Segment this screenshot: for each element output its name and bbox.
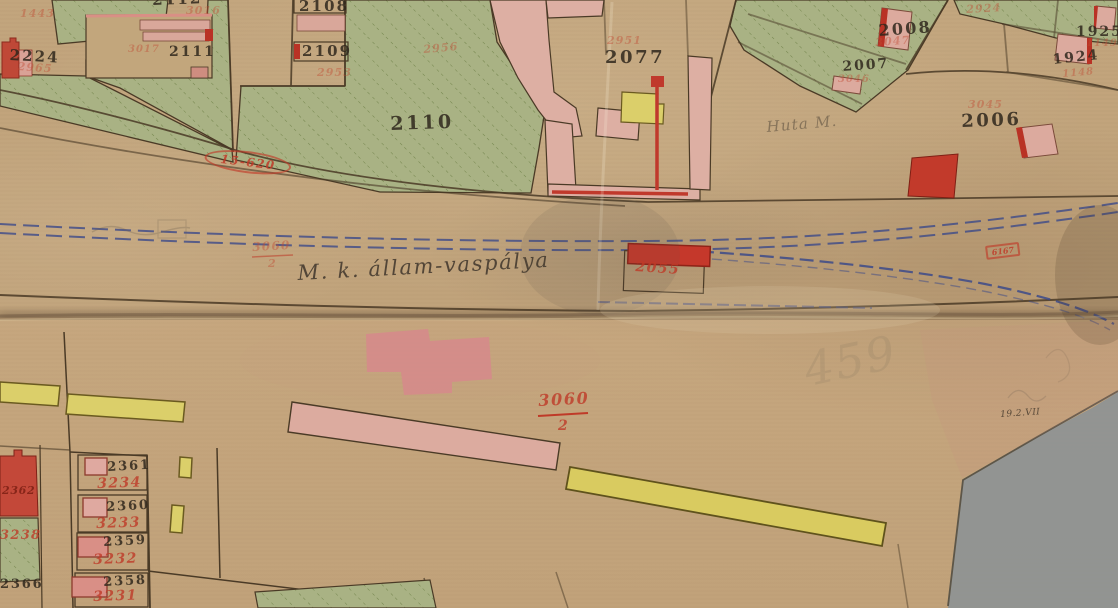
map-label-2366: 2366: [0, 578, 43, 591]
map-label-2362: 2362: [2, 485, 35, 496]
map-label-3231: 3231: [93, 588, 138, 604]
map-label-2109: 2109: [302, 44, 352, 59]
map-label-2111: 2111: [169, 45, 216, 59]
map-label-1924: 1924: [1052, 48, 1100, 67]
map-label-2953: 2953: [317, 67, 352, 78]
map-label-3047: 3047: [875, 35, 911, 48]
map-label-2007: 2007: [842, 57, 890, 74]
map-label-3045: 3045: [968, 99, 1003, 110]
map-label-3233: 3233: [96, 515, 141, 531]
map-label-19-2-vii: 19.2.VII: [1000, 408, 1041, 420]
map-label-2108: 2108: [299, 0, 349, 14]
map-label-2: 2: [558, 419, 569, 433]
map-label-2956: 2956: [423, 41, 459, 55]
map-label-1443: 1443: [20, 8, 55, 19]
map-labels-layer: 2112210821092111222421102077200820072006…: [0, 0, 1118, 608]
map-label-3238: 3238: [0, 529, 41, 542]
map-label-3016: 3016: [186, 5, 221, 16]
map-label-15-620: 15-620: [203, 146, 292, 178]
map-label-3060: 3060: [252, 239, 291, 253]
map-label-1925: 1925: [1076, 25, 1118, 39]
map-label-2965: 2965: [17, 61, 53, 74]
map-label-3232: 3232: [93, 551, 138, 567]
cadastral-map-canvas: 2112210821092111222421102077200820072006…: [0, 0, 1118, 608]
map-label-2360: 2360: [106, 499, 150, 514]
map-label-1149: 1149: [1086, 39, 1118, 49]
map-label-459: 459: [800, 329, 901, 393]
map-label-m-k-llam-vasp-lya: M. k. állam-vaspálya: [297, 250, 550, 284]
map-label-2359: 2359: [103, 534, 147, 549]
map-label-2924: 2924: [966, 2, 1002, 15]
map-label-2077: 2077: [605, 49, 665, 67]
map-label-2006: 2006: [961, 111, 1022, 131]
map-label-2951: 2951: [607, 35, 642, 46]
map-label-2361: 2361: [107, 459, 151, 474]
map-label-2: 2: [268, 258, 277, 269]
map-label-1148: 1148: [1062, 67, 1095, 80]
map-label-3046: 3046: [838, 75, 870, 85]
map-label-3060: 3060: [538, 390, 590, 409]
map-label-2055: 2055: [635, 260, 680, 277]
map-label-2358: 2358: [103, 574, 147, 589]
map-label-huta-m-: Huta M.: [766, 114, 838, 135]
map-label-6167: 6167: [985, 242, 1021, 260]
map-label-2110: 2110: [390, 113, 454, 134]
map-label-3017: 3017: [128, 45, 160, 55]
map-label-3234: 3234: [97, 475, 142, 491]
